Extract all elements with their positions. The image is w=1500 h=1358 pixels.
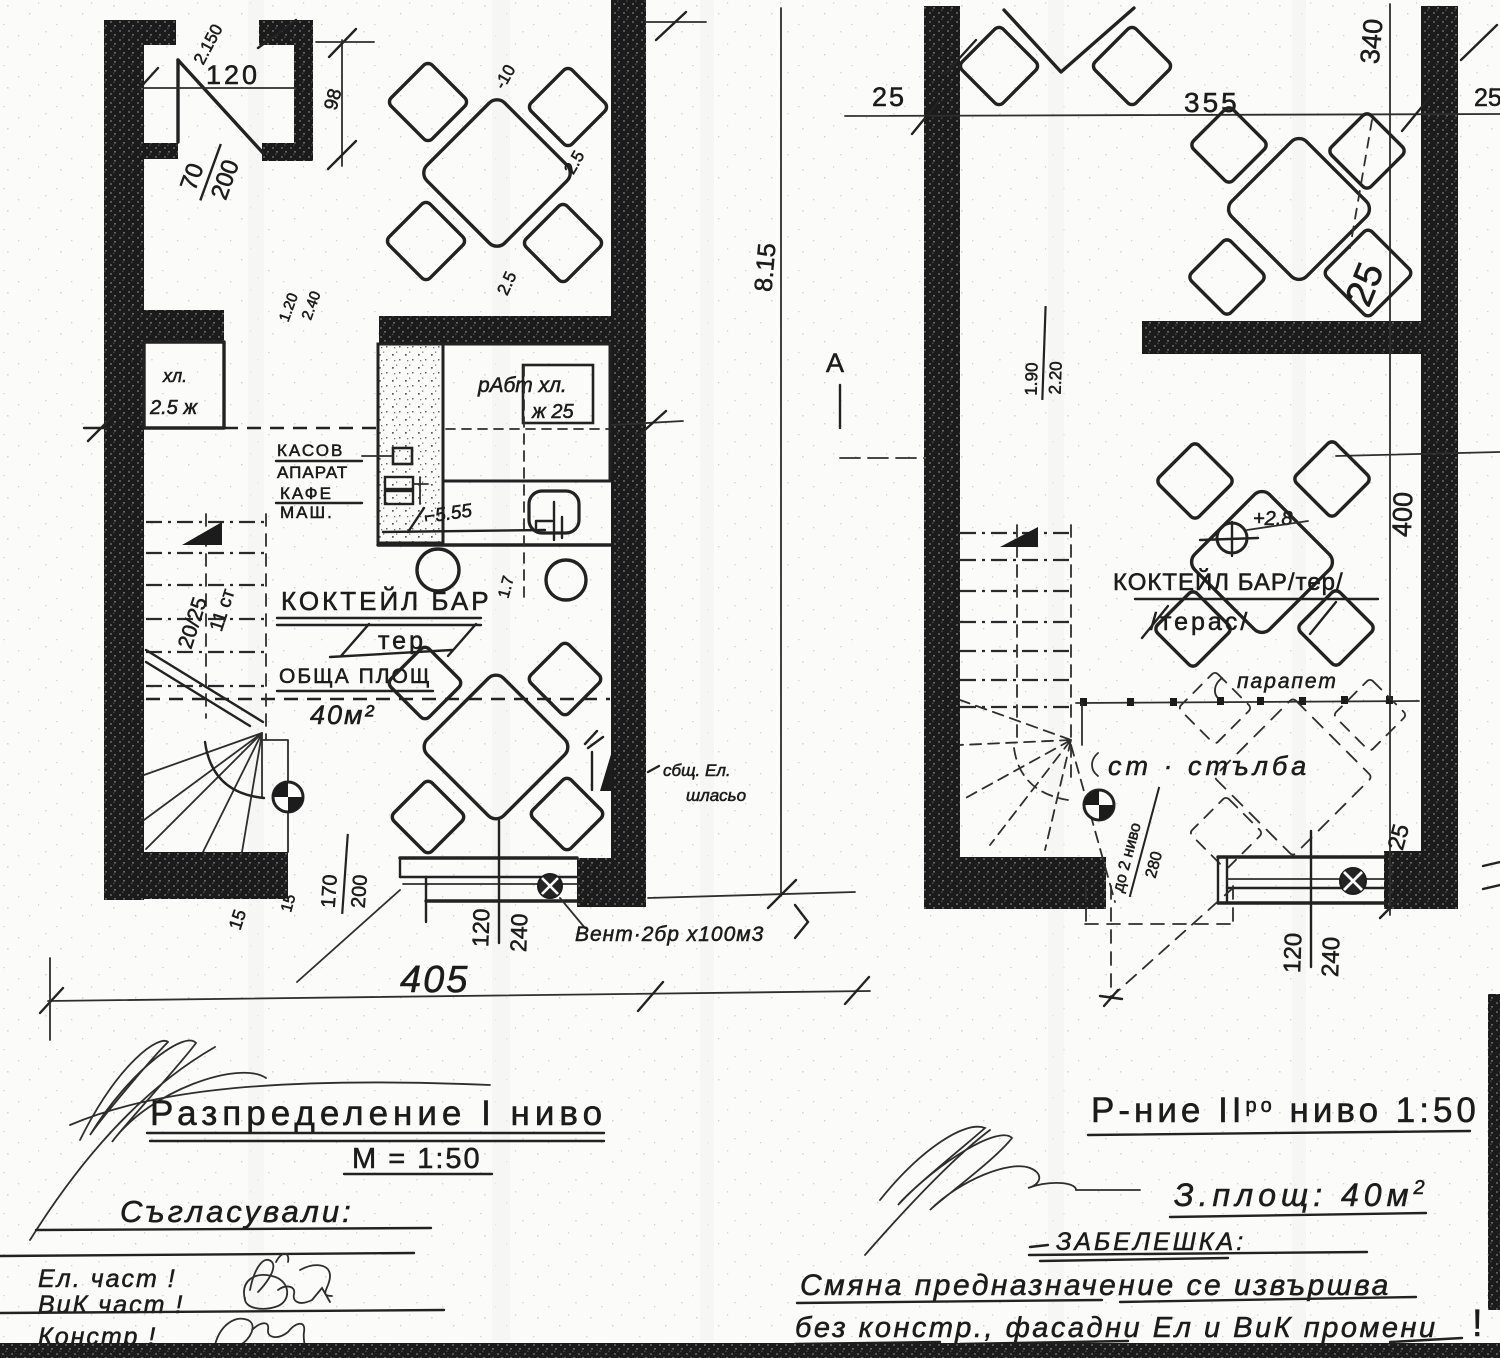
svg-text:1.90: 1.90 [1021, 362, 1041, 396]
svg-text:КАСОВ: КАСОВ [277, 441, 344, 460]
svg-text:120: 120 [467, 908, 494, 947]
svg-text:ВиК част !: ВиК част ! [38, 1291, 184, 1319]
svg-text:КАФЕ: КАФЕ [280, 484, 333, 503]
svg-text:25: 25 [1474, 84, 1500, 112]
svg-text:ст · стълба: ст · стълба [1108, 751, 1310, 781]
svg-text:КОКТЕЙЛ БАР: КОКТЕЙЛ БАР [281, 586, 492, 616]
svg-text:Вент·2бр х100м3: Вент·2бр х100м3 [575, 923, 764, 946]
svg-text:сбщ. Ел.: сбщ. Ел. [663, 761, 731, 780]
svg-text:М = 1:50: М = 1:50 [352, 1143, 482, 1175]
svg-text:Разпределение I ниво: Разпределение I ниво [150, 1094, 607, 1133]
svg-text:25: 25 [872, 82, 906, 112]
svg-text:120: 120 [206, 60, 260, 90]
svg-text:МАШ.: МАШ. [280, 503, 334, 522]
svg-text:400: 400 [1387, 491, 1419, 537]
svg-text:/терас/: /терас/ [1150, 608, 1250, 636]
svg-text:парапет: парапет [1237, 670, 1338, 693]
svg-text:рАбт хл.: рАбт хл. [477, 374, 567, 397]
svg-text:Ел. част !: Ел. част ! [38, 1265, 177, 1293]
svg-text:КОКТЕЙЛ БАР/тер/: КОКТЕЙЛ БАР/тер/ [1113, 568, 1344, 596]
svg-text:240: 240 [1317, 936, 1345, 977]
svg-text:200: 200 [348, 874, 372, 909]
svg-text:хл.: хл. [162, 366, 187, 386]
svg-text:170: 170 [318, 874, 342, 909]
svg-text:Съгласували:: Съгласували: [120, 1194, 354, 1229]
svg-text:8.15: 8.15 [749, 242, 781, 293]
svg-text:2.20: 2.20 [1046, 361, 1066, 395]
svg-text:А: А [826, 348, 844, 378]
svg-text:Смяна предназначение се извърш: Смяна предназначение се извършва [800, 1269, 1391, 1302]
svg-text:340: 340 [1355, 18, 1389, 66]
svg-text:ОБЩА ПЛОЩ: ОБЩА ПЛОЩ [279, 665, 432, 688]
svg-text:120: 120 [1279, 932, 1307, 973]
svg-text:без констр., фасадни Ел и ВиК: без констр., фасадни Ел и ВиК промени [795, 1312, 1438, 1344]
svg-text:ж 25: ж 25 [531, 401, 574, 423]
svg-text:Р-ние IIро ниво 1:50: Р-ние IIро ниво 1:50 [1091, 1091, 1480, 1130]
svg-text:240: 240 [505, 913, 532, 952]
svg-text:40м²: 40м² [310, 700, 376, 730]
svg-text:шласьо: шласьо [686, 786, 746, 805]
svg-text:405: 405 [400, 959, 469, 1001]
svg-text:!: ! [1472, 1303, 1483, 1345]
svg-text:2.5 ж: 2.5 ж [149, 397, 198, 419]
svg-text:ЗАБЕЛЕШКА:: ЗАБЕЛЕШКА: [1056, 1228, 1246, 1256]
svg-text:АПАРАТ: АПАРАТ [277, 463, 348, 482]
svg-text:355: 355 [1184, 87, 1240, 118]
svg-text:З.площ: 40м2: З.площ: 40м2 [1174, 1177, 1430, 1213]
